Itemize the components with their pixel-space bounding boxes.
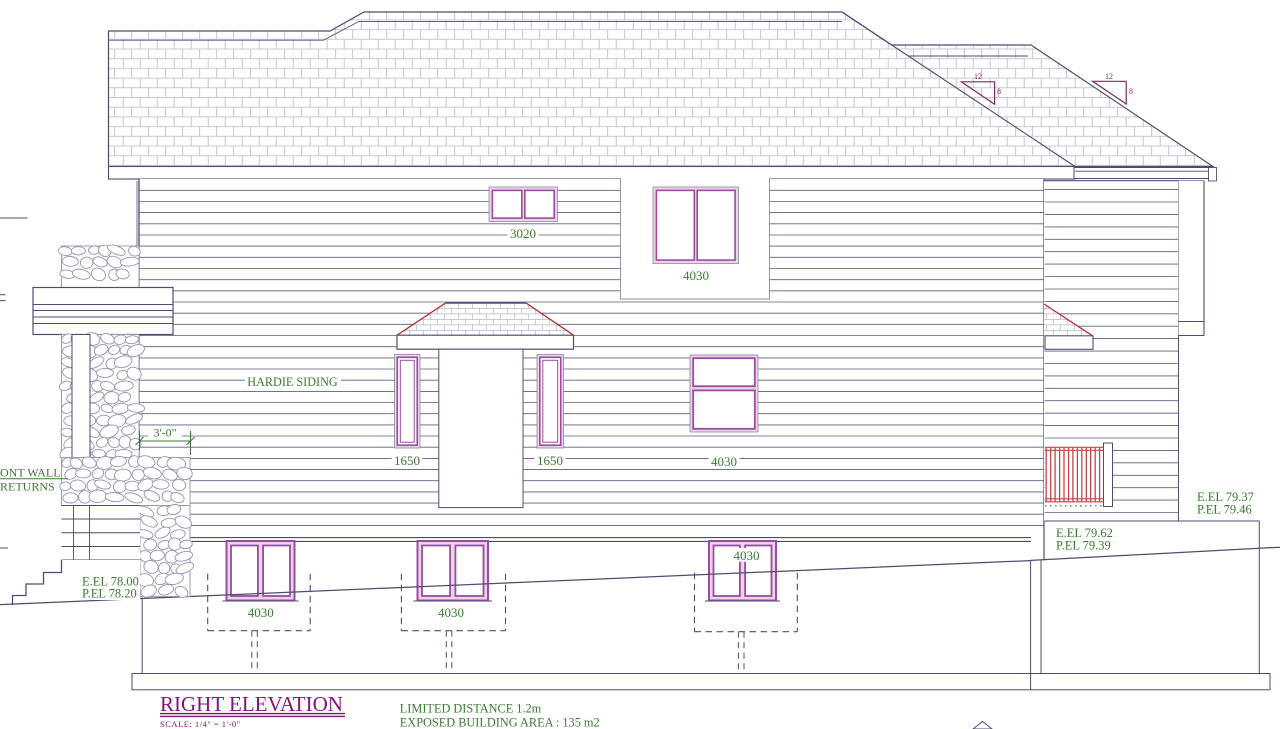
svg-text:3'-0": 3'-0" [153,426,176,440]
svg-text:12: 12 [974,72,982,81]
svg-text:1650: 1650 [537,453,563,468]
svg-text:P.EL 79.46: P.EL 79.46 [1197,503,1252,517]
svg-text:P.EL 79.39: P.EL 79.39 [1056,539,1111,553]
svg-text:EXPOSED BUILDING AREA : 135 m2: EXPOSED BUILDING AREA : 135 m2 [400,716,600,729]
svg-text:4030: 4030 [248,605,274,620]
svg-text:P.EL 78.20: P.EL 78.20 [82,587,137,601]
svg-text:4030: 4030 [438,605,464,620]
svg-text:RIGHT ELEVATION: RIGHT ELEVATION [160,692,343,716]
svg-text:4030: 4030 [734,548,760,563]
svg-text:4030: 4030 [711,454,737,469]
svg-text:12: 12 [1105,72,1113,81]
svg-text:3020: 3020 [510,226,536,241]
svg-text:RETURNS: RETURNS [0,480,55,494]
svg-text:8: 8 [1129,87,1133,96]
svg-text:1650: 1650 [394,453,420,468]
svg-text:HARDIE SIDING: HARDIE SIDING [247,375,338,389]
svg-text:LIMITED DISTANCE 1.2m: LIMITED DISTANCE 1.2m [400,702,542,716]
svg-text:ONT WALL: ONT WALL [0,466,61,480]
svg-text:8: 8 [997,87,1001,96]
svg-text:4030: 4030 [683,268,709,283]
svg-text:SCALE: 1/4" = 1'-0": SCALE: 1/4" = 1'-0" [160,719,241,729]
